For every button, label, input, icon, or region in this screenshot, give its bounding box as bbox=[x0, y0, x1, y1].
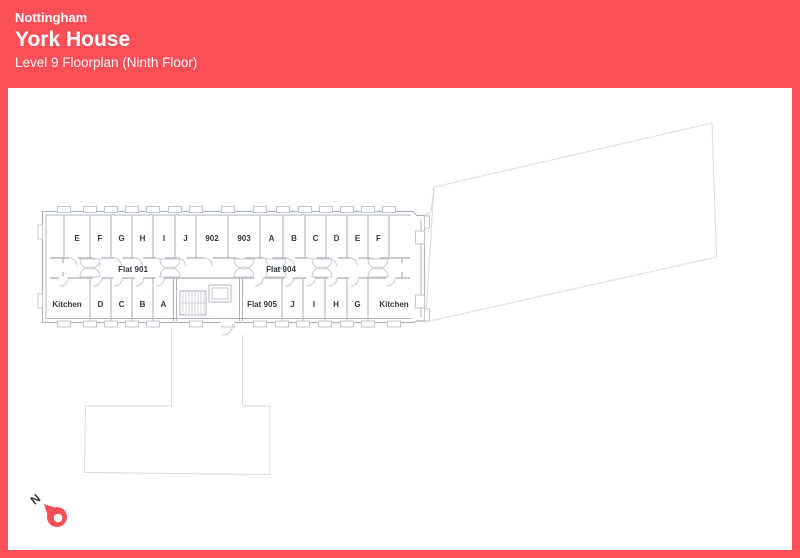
room-label: A bbox=[161, 300, 167, 309]
compass-pin-icon bbox=[44, 504, 67, 527]
city-label: Nottingham bbox=[15, 11, 800, 26]
room-label: J bbox=[290, 300, 294, 309]
room-label: 902 bbox=[205, 234, 219, 243]
room-label: E bbox=[355, 234, 361, 243]
room-label: F bbox=[98, 234, 103, 243]
room-label: Kitchen bbox=[52, 300, 81, 309]
room-label: C bbox=[119, 300, 125, 309]
title-banner: Nottingham York House Level 9 Floorplan … bbox=[0, 0, 800, 88]
room-label: G bbox=[354, 300, 360, 309]
floor-subtitle: Level 9 Floorplan (Ninth Floor) bbox=[15, 55, 800, 71]
room-label: D bbox=[98, 300, 104, 309]
flat-label: Flat 905 bbox=[247, 300, 277, 309]
room-label: D bbox=[334, 234, 340, 243]
room-label: I bbox=[313, 300, 315, 309]
room-label: C bbox=[313, 234, 319, 243]
room-label: H bbox=[140, 234, 146, 243]
room-label: B bbox=[140, 300, 146, 309]
room-label: J bbox=[183, 234, 187, 243]
room-label: I bbox=[163, 234, 165, 243]
room-label: H bbox=[333, 300, 339, 309]
lower-extension-outline bbox=[85, 329, 271, 475]
flat-label: Flat 901 bbox=[118, 265, 148, 274]
room-label: 903 bbox=[237, 234, 251, 243]
room-label: E bbox=[74, 234, 80, 243]
compass-north-label: N bbox=[28, 491, 44, 507]
room-label: A bbox=[269, 234, 275, 243]
room-label: B bbox=[291, 234, 297, 243]
flat-label: Flat 904 bbox=[266, 265, 296, 274]
compass: N bbox=[28, 491, 67, 527]
corridor-flat-labels: Flat 901 Flat 904 bbox=[118, 265, 296, 274]
building-title: York House bbox=[15, 28, 800, 52]
room-partitions bbox=[64, 215, 389, 321]
room-label: F bbox=[376, 234, 381, 243]
page: Nottingham York House Level 9 Floorplan … bbox=[0, 0, 800, 558]
room-label: Kitchen bbox=[379, 300, 408, 309]
room-label: G bbox=[118, 234, 124, 243]
adjacent-building-outline bbox=[425, 123, 717, 322]
door-gaps bbox=[59, 258, 402, 278]
